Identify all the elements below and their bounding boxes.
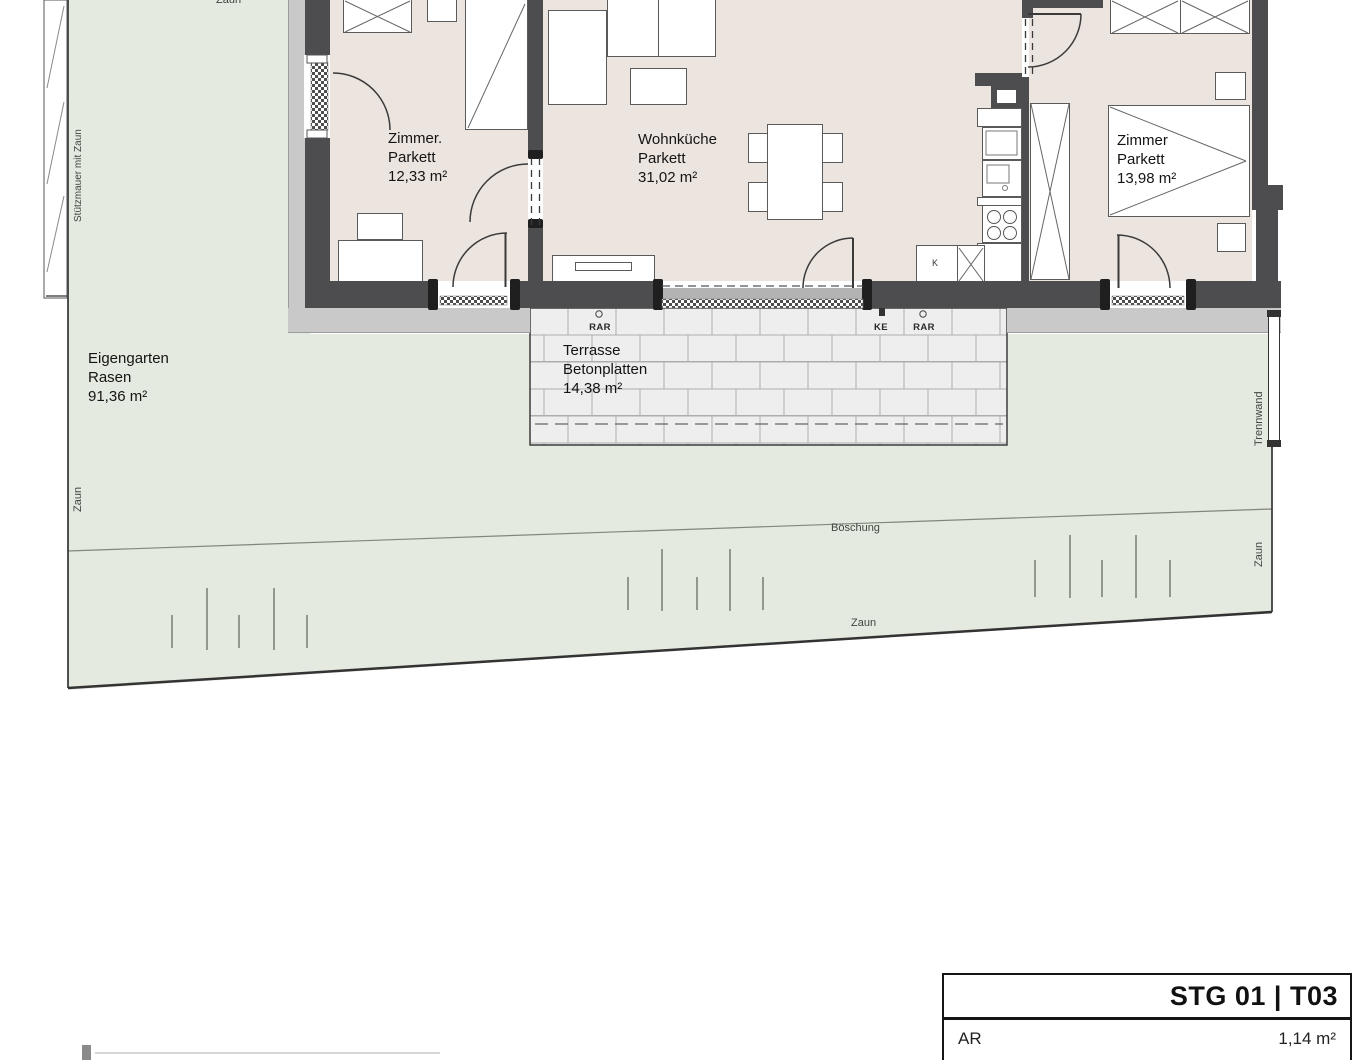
fence-label-top: Zaun	[216, 0, 241, 6]
terrace-surface: Betonplatten	[563, 360, 647, 379]
garden-surface: Rasen	[88, 368, 169, 387]
terrace-name: Terrasse	[563, 341, 647, 360]
kitchen-k-label: K	[932, 258, 938, 268]
marker-ke: KE	[867, 322, 895, 333]
room-floor-type: Parkett	[1117, 150, 1176, 169]
title-block-row-ar: AR 1,14 m²	[944, 1020, 1350, 1049]
title-block: STG 01 | T03 AR 1,14 m²	[942, 973, 1352, 1060]
fence-label-right: Zaun	[1253, 542, 1265, 567]
room-name: Wohnküche	[638, 130, 717, 149]
room-label-zimmer-right: Zimmer Parkett 13,98 m²	[1117, 131, 1176, 188]
room-label-zimmer-left: Zimmer. Parkett 12,33 m²	[388, 129, 447, 186]
terrace-area-value: 14,38 m²	[563, 379, 647, 398]
room-area: 31,02 m²	[638, 168, 717, 187]
floorplan-canvas: Zimmer. Parkett 12,33 m² Wohnküche Parke…	[0, 0, 1370, 1060]
room-floor-type: Parkett	[388, 148, 447, 167]
garden-name: Eigengarten	[88, 349, 169, 368]
door-arcs	[333, 14, 1170, 288]
garden-area-value: 91,36 m²	[88, 387, 169, 406]
marker-rar-left: RAR	[585, 322, 615, 333]
slope-label: Böschung	[831, 522, 880, 534]
room-area: 13,98 m²	[1117, 169, 1176, 188]
dashed-openings	[532, 19, 1033, 225]
fence-label-bottom: Zaun	[851, 617, 876, 629]
partition-label: Trennwand	[1253, 391, 1265, 446]
garden-label: Eigengarten Rasen 91,36 m²	[88, 349, 169, 406]
room-label-wohnkueche: Wohnküche Parkett 31,02 m²	[638, 130, 717, 187]
room-floor-type: Parkett	[638, 149, 717, 168]
title-block-title: STG 01 | T03	[944, 975, 1350, 1020]
title-block-row-label: AR	[958, 1029, 982, 1049]
terrace-label: Terrasse Betonplatten 14,38 m²	[563, 341, 647, 398]
room-area: 12,33 m²	[388, 167, 447, 186]
marker-rar-right: RAR	[908, 322, 940, 333]
hob-burners	[988, 211, 1017, 240]
retaining-wall-label: Stützmauer mit Zaun	[73, 129, 84, 222]
fence-label-left: Zaun	[72, 487, 84, 512]
room-name: Zimmer.	[388, 129, 447, 148]
room-name: Zimmer	[1117, 131, 1176, 150]
title-block-row-value: 1,14 m²	[1278, 1029, 1336, 1049]
